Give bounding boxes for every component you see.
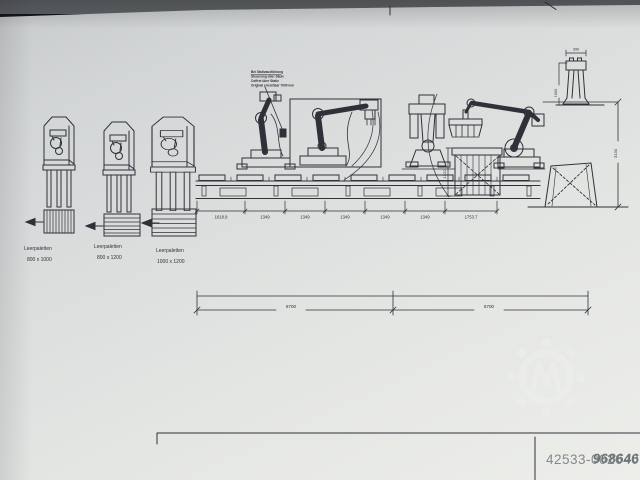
- dimension-overall: [194, 291, 591, 315]
- dim-segment-1: 1618.8: [215, 215, 228, 220]
- infeed-arrow-2: [86, 223, 103, 230]
- infeed-arrow-1: [26, 219, 43, 226]
- dim-stack-height: 1222: [442, 169, 447, 179]
- pallet-magazine-3: [151, 117, 196, 211]
- watermark-number-overlay: 9686467: [592, 451, 640, 466]
- pallet-stack-1: [44, 210, 74, 233]
- pallet-magazine-2: [103, 122, 135, 212]
- annotation-line-2: Steuerung über Säule: [251, 75, 284, 79]
- fork-gripper: [449, 110, 482, 137]
- discharge-bin: [545, 163, 597, 207]
- dim-post-width: 390: [573, 48, 579, 52]
- conveyor-segment-labels: 1618.8 1349 1349 1349 1349 1349 1753.7: [215, 215, 478, 220]
- magazine-2-size: 800 x 1200: [97, 255, 122, 261]
- work-envelope-arc: [428, 94, 449, 197]
- sheet-frame-lines: [157, 2, 640, 480]
- infeed-arrow-3: [142, 220, 159, 227]
- magazine-1-size: 800 x 1000: [27, 257, 52, 263]
- magazine-3-label: Leerpaletten: [156, 248, 184, 254]
- gear-emblem-watermark-icon: [508, 339, 584, 415]
- annotation-note: Bei Stativausführung Steuerung über Säul…: [251, 70, 294, 88]
- dim-post-height: 1000: [554, 89, 558, 97]
- dim-overall-right: 6700: [484, 304, 495, 309]
- magazine-3-size: 1000 x 1200: [157, 259, 185, 265]
- dim-segment-3: 1349: [300, 215, 310, 220]
- signal-post: [556, 58, 604, 105]
- annotation-line-3: Coffret über Stativ: [251, 79, 279, 83]
- dim-overall-left: 6700: [286, 304, 297, 309]
- robot-2-side-view: [300, 100, 380, 180]
- dim-segment-6: 1349: [420, 215, 430, 220]
- dim-segment-7: 1753.7: [465, 215, 478, 220]
- annotation-line-1: Bei Stativausführung: [251, 70, 283, 74]
- dim-segment-5: 1349: [380, 215, 390, 220]
- palletizer-layout-drawing: Leerpaletten 800 x 1000 Leerpaletten 800…: [0, 0, 640, 480]
- watermark-number: 42533-0026407 9686467: [546, 452, 640, 467]
- photographed-technical-drawing: Leerpaletten 800 x 1000 Leerpaletten 800…: [0, 0, 640, 480]
- dim-segment-2: 1349: [260, 215, 270, 220]
- pallet-stack-2: [104, 214, 140, 236]
- annotation-line-4: Original erreichbar 7000 mm: [251, 84, 294, 88]
- dim-total-height: 3130: [613, 148, 618, 158]
- magazine-2-label: Leerpaletten: [94, 244, 122, 250]
- dimension-chain-conveyor: [195, 201, 499, 214]
- pallet-magazine-1: [43, 117, 75, 207]
- magazine-1-label: Leerpaletten: [24, 246, 52, 252]
- dim-segment-4: 1349: [340, 215, 350, 220]
